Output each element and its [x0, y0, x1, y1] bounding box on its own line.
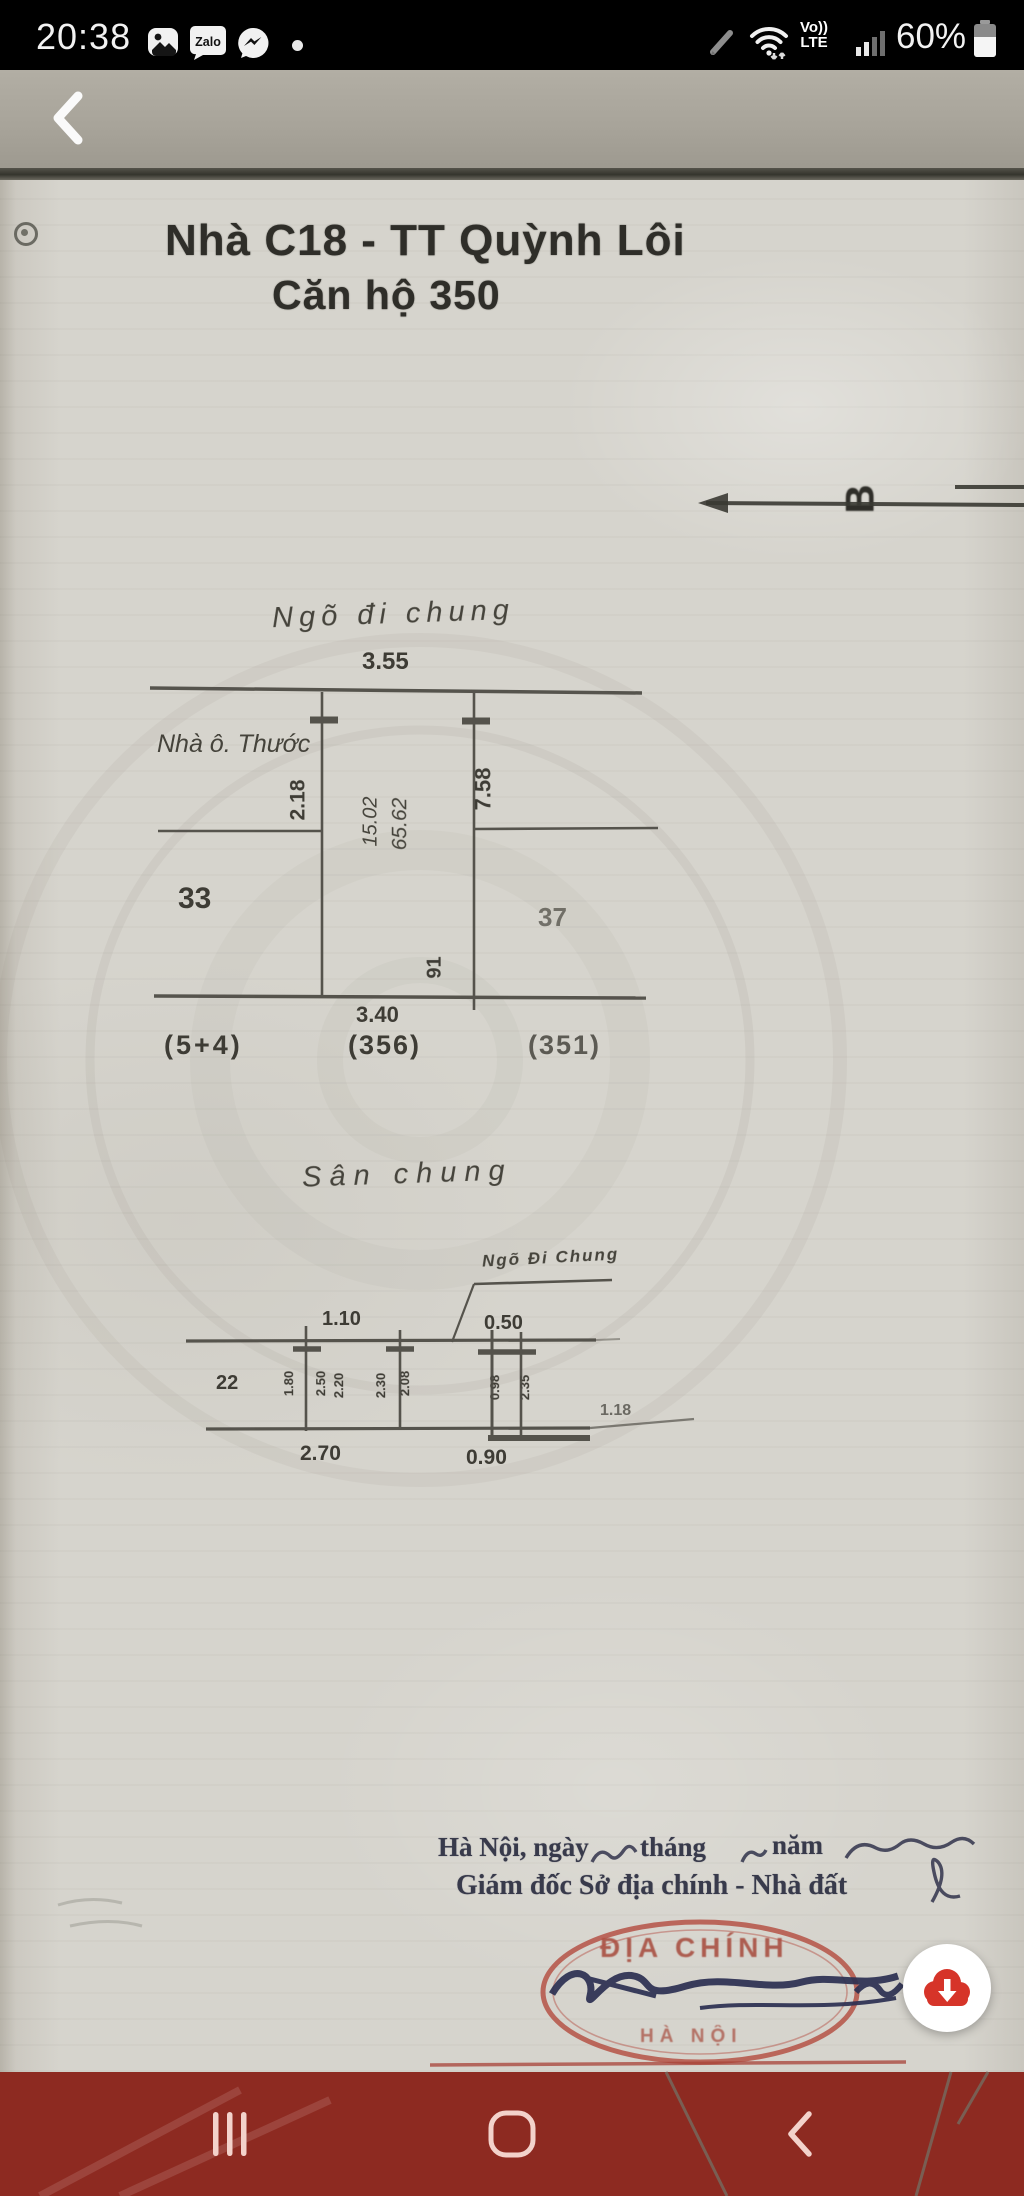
- phone-screen: 20:38 Zalo: [0, 0, 1024, 2196]
- plan-corner-mark: 91: [424, 956, 447, 978]
- section-left-mark: 22: [216, 1372, 238, 1395]
- plan-ref-center: (356): [348, 1030, 421, 1061]
- notification-dot: [292, 40, 303, 51]
- plan-neighbor-label: Nhà ô. Thước: [157, 730, 310, 759]
- stylus-icon: [706, 26, 738, 58]
- footer-date-part1: Hà Nội, ngày: [438, 1832, 589, 1863]
- plan-left-plot-number: 33: [178, 882, 211, 916]
- footer-signer-title: Giám đốc Sở địa chính - Nhà đất: [456, 1870, 847, 1902]
- doc-title-line2: Căn hộ 350: [272, 272, 501, 319]
- compass-north-label: B: [838, 484, 883, 514]
- stamp-bottom-text: HÀ NỘI: [640, 2026, 743, 2048]
- recents-button[interactable]: [170, 2072, 290, 2196]
- document-canvas[interactable]: Nhà C18 - TT Quỳnh Lôi Căn hộ 350 B Ngõ …: [0, 180, 1024, 2072]
- footer-date-part2: tháng: [640, 1832, 706, 1863]
- plan-area-value-1: 15.02: [360, 796, 383, 846]
- section-dim-right: 1.18: [600, 1402, 631, 1420]
- back-button[interactable]: [46, 88, 90, 148]
- hole-punch-dot: [21, 229, 28, 236]
- back-nav-button[interactable]: [740, 2072, 860, 2196]
- clock: 20:38: [36, 16, 131, 58]
- doc-title-line1: Nhà C18 - TT Quỳnh Lôi: [165, 216, 686, 266]
- section-bottom-dim-left: 2.70: [300, 1442, 341, 1466]
- scan-edge-shadow: [0, 168, 1024, 180]
- plan-right-depth: 7.58: [470, 768, 496, 811]
- plan-bottom-width: 3.40: [356, 1002, 399, 1028]
- section-small-dim-6: 2.35: [517, 1375, 532, 1400]
- plan-ref-right: (351): [528, 1030, 601, 1061]
- zalo-icon: Zalo: [189, 25, 227, 61]
- watermark: [0, 180, 1024, 2072]
- stamp-arc-text: ĐỊA CHÍNH: [600, 1932, 789, 1964]
- plan-left-depth: 2.18: [286, 780, 310, 821]
- section-small-dim-5: 0.98: [487, 1375, 502, 1400]
- status-bar: 20:38 Zalo: [0, 0, 1024, 70]
- plan-ref-left: (5+4): [164, 1030, 243, 1061]
- signal-strength-icon: [856, 28, 890, 58]
- section-dim-a: 1.10: [322, 1308, 361, 1331]
- wifi-icon: [748, 24, 790, 62]
- battery-icon: [972, 20, 998, 58]
- section-bottom-dim-right: 0.90: [466, 1446, 507, 1470]
- viewer-toolbar: [0, 70, 1024, 170]
- plan-right-plot-number: 37: [538, 902, 567, 933]
- section-dim-b: 0.50: [484, 1312, 523, 1335]
- section-small-dim-1: 2.50: [313, 1371, 328, 1396]
- plan-top-width: 3.55: [362, 648, 409, 676]
- gallery-icon: [147, 26, 179, 58]
- section-small-dim-3: 2.30: [373, 1373, 388, 1398]
- footer-date-part3: năm: [772, 1830, 823, 1861]
- svg-text:Zalo: Zalo: [195, 35, 221, 49]
- plan-area-value-2: 65.62: [388, 798, 412, 851]
- section-small-dim-2: 2.20: [331, 1373, 346, 1398]
- messenger-icon: [237, 27, 269, 59]
- home-button[interactable]: [452, 2072, 572, 2196]
- cloud-download-icon: [918, 1965, 976, 2011]
- section-small-dim-0: 1.80: [281, 1371, 296, 1396]
- battery-percent: 60%: [896, 17, 966, 57]
- download-fab[interactable]: [903, 1944, 991, 2032]
- section-small-dim-4: 2.08: [397, 1371, 412, 1396]
- volte-indicator: Vo)) LTE: [800, 20, 828, 50]
